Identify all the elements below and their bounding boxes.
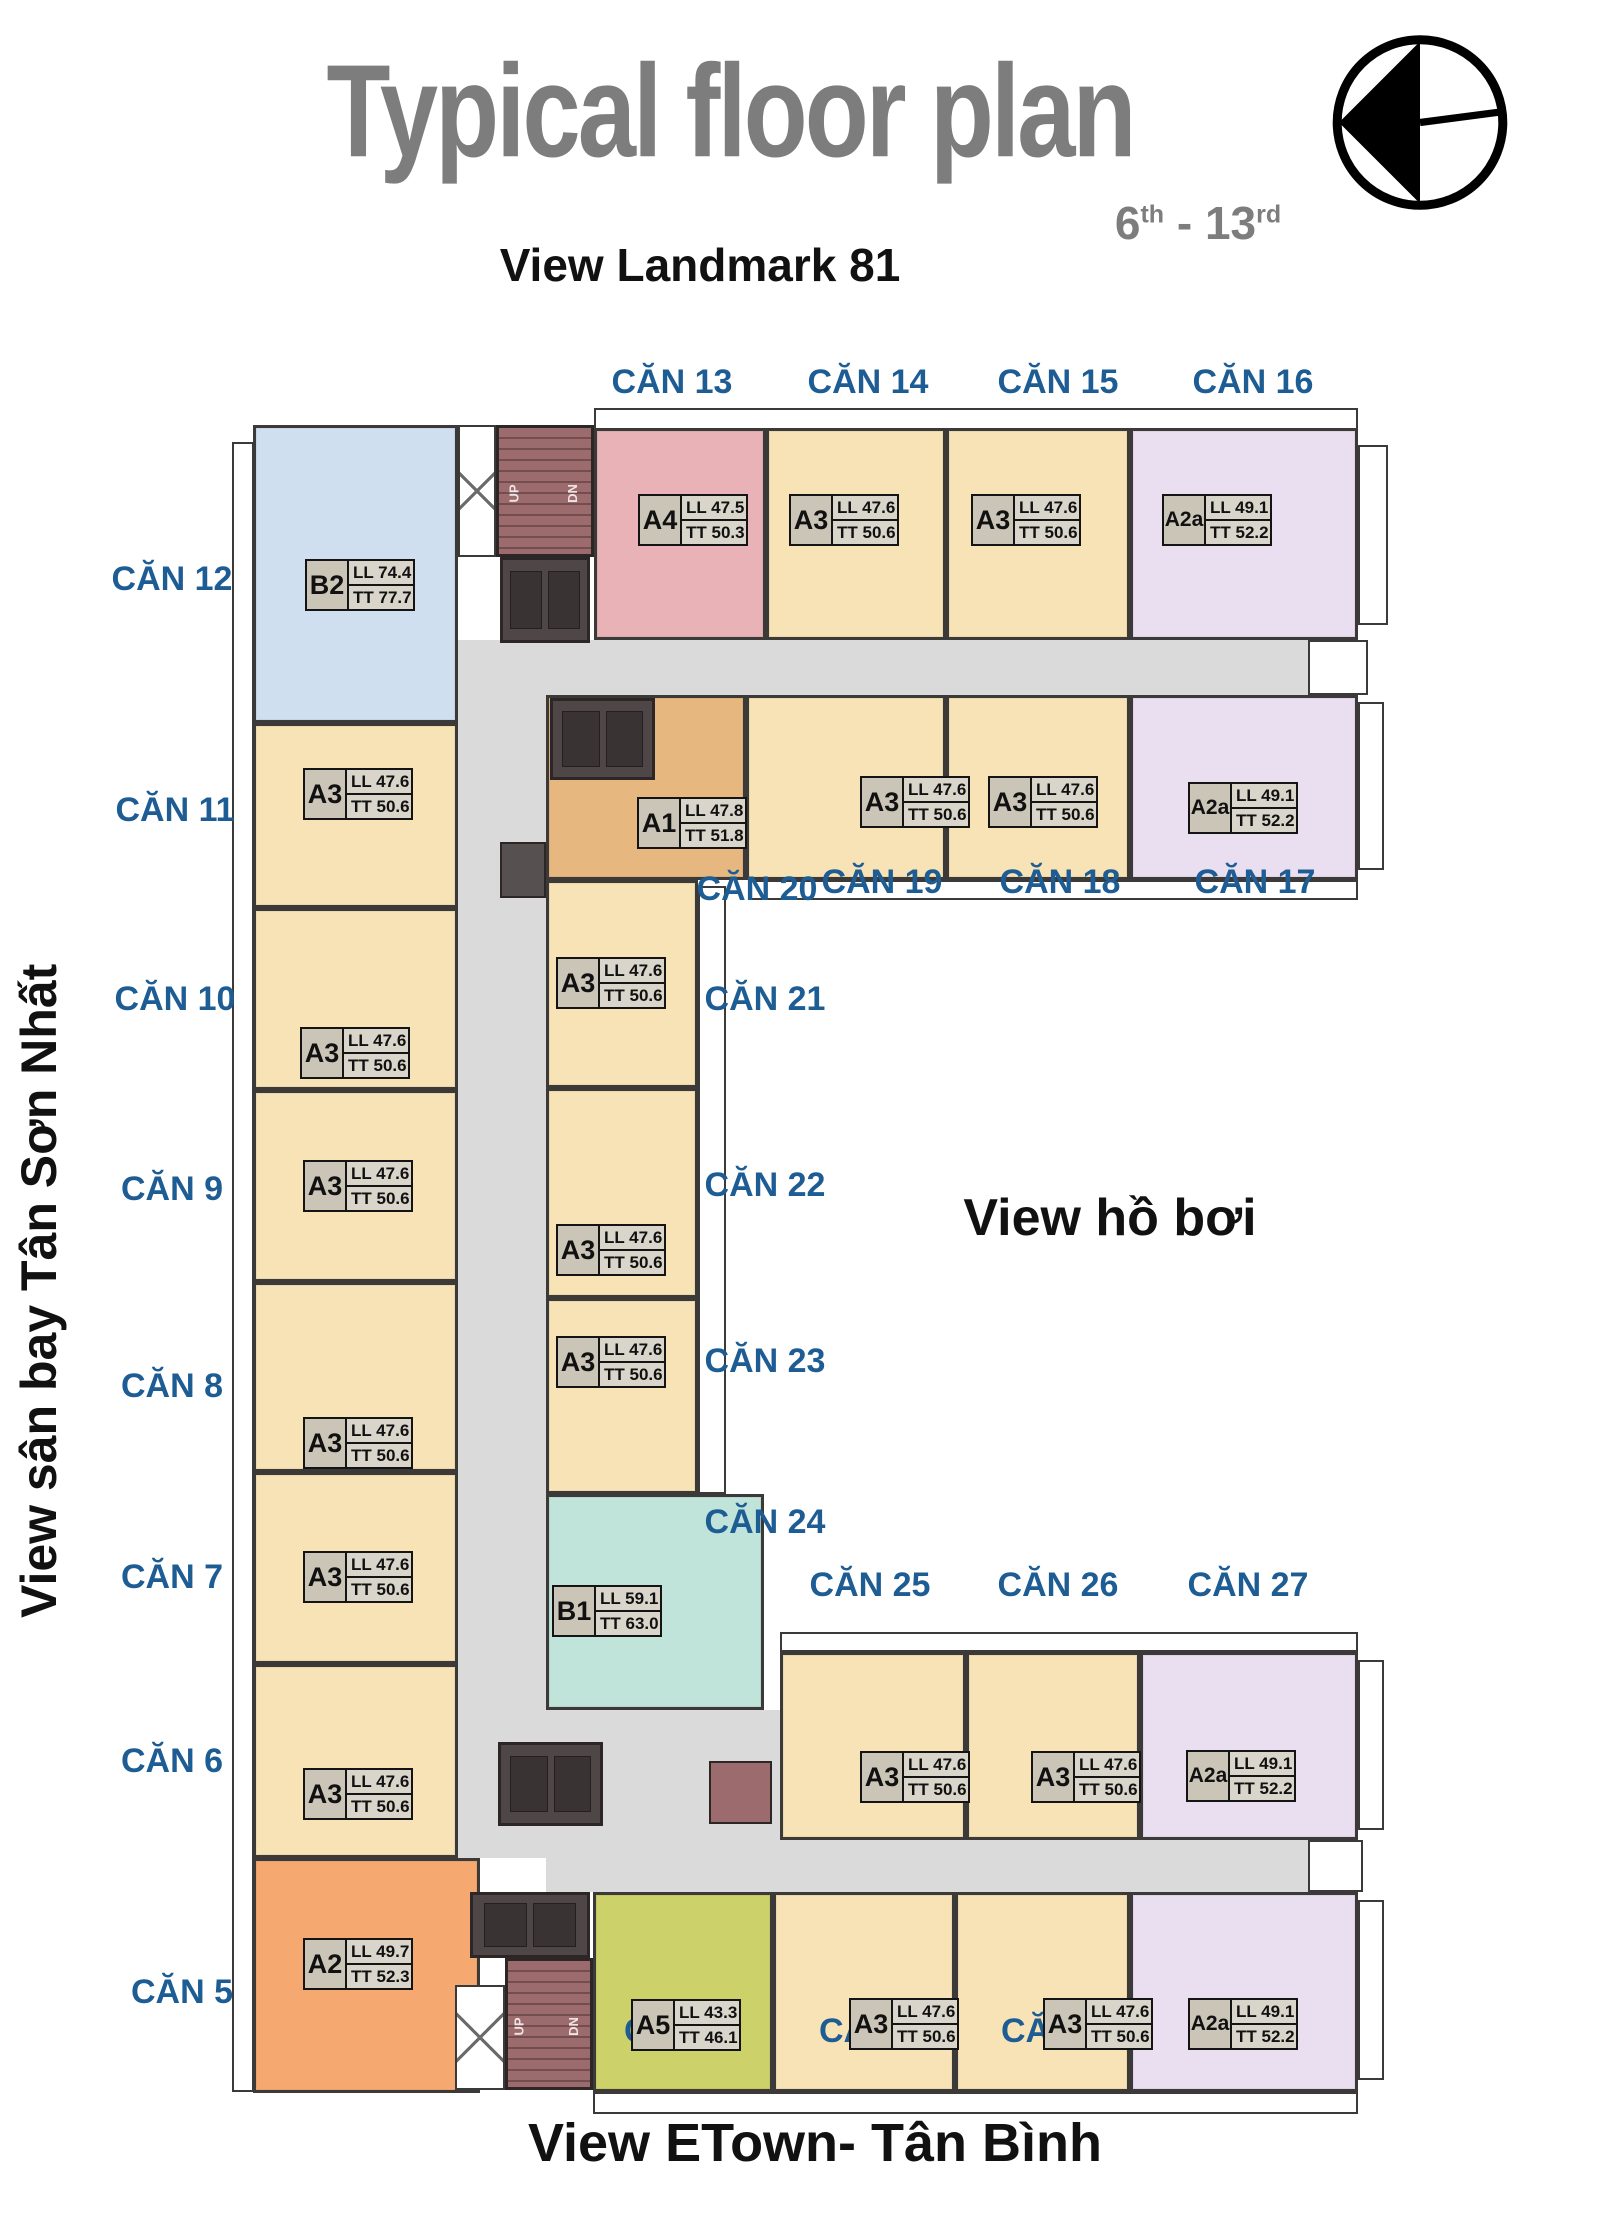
- floor-range: 6th - 13rd: [1048, 196, 1348, 250]
- unit-ll: LL 47.8: [681, 799, 745, 824]
- unit-can23-A3: [546, 1298, 698, 1494]
- unit-type: A3: [558, 1226, 600, 1274]
- infobox-can3: A3LL 47.6TT 50.6: [849, 1998, 959, 2050]
- infobox-can7: A3LL 47.6TT 50.6: [303, 1551, 413, 1603]
- unit-ll: LL 47.6: [600, 1226, 664, 1251]
- unit-ll: LL 47.6: [893, 2000, 957, 2025]
- stairs-bottom: UP DN: [505, 1958, 593, 2090]
- infobox-can21: A3LL 47.6TT 50.6: [556, 957, 666, 1009]
- label-can13: CĂN 13: [597, 363, 747, 402]
- unit-ll: LL 47.6: [347, 1770, 411, 1795]
- elevator-lower: [498, 1742, 603, 1826]
- unit-tt: TT 50.6: [347, 1444, 411, 1467]
- label-can24: CĂN 24: [690, 1503, 840, 1542]
- unit-type: A3: [851, 2000, 893, 2048]
- balcony-left-strip: [232, 442, 254, 2092]
- label-can21: CĂN 21: [690, 980, 840, 1019]
- view-airport-label: View sân bay Tân Sơn Nhất: [10, 788, 68, 1618]
- stairs-top: UP DN: [496, 425, 594, 557]
- balcony-right-1: [1358, 445, 1388, 625]
- infobox-can18: A3LL 47.6TT 50.6: [988, 776, 1098, 828]
- infobox-can8: A3LL 47.6TT 50.6: [303, 1417, 413, 1469]
- infobox-can20: A1LL 47.8TT 51.8: [637, 797, 747, 849]
- unit-tt: TT 50.6: [904, 803, 968, 826]
- unit-type: A3: [305, 1419, 347, 1467]
- unit-ll: LL 47.5: [682, 496, 746, 521]
- unit-ll: LL 47.6: [344, 1029, 408, 1054]
- unit-tt: TT 50.6: [347, 795, 411, 818]
- unit-type: A4: [640, 496, 682, 544]
- unit-tt: TT 50.6: [833, 521, 897, 544]
- unit-tt: TT 50.6: [904, 1778, 968, 1801]
- unit-type: A3: [305, 770, 347, 818]
- unit-tt: TT 50.3: [682, 521, 746, 544]
- label-can9: CĂN 9: [97, 1170, 247, 1209]
- infobox-can4: A5LL 43.3TT 46.1: [631, 1999, 741, 2051]
- infobox-can25: A3LL 47.6TT 50.6: [860, 1751, 970, 1803]
- unit-tt: TT 50.6: [600, 1251, 664, 1274]
- unit-can26-A3: [966, 1652, 1140, 1840]
- label-can18: CĂN 18: [985, 863, 1135, 902]
- balcony-top-strip: [594, 408, 1358, 430]
- label-can7: CĂN 7: [97, 1558, 247, 1597]
- unit-type: A3: [302, 1029, 344, 1077]
- unit-type: A2a: [1190, 784, 1232, 832]
- label-can12: CĂN 12: [97, 560, 247, 599]
- label-can19: CĂN 19: [807, 863, 957, 902]
- unit-ll: LL 49.1: [1230, 1752, 1294, 1777]
- unit-can1-A2a: [1130, 1892, 1358, 2092]
- unit-can6-A3: [253, 1664, 458, 1858]
- unit-type: A2a: [1190, 2000, 1232, 2048]
- view-pool-label: View hồ bơi: [930, 1188, 1290, 1248]
- unit-ll: LL 47.6: [833, 496, 897, 521]
- infobox-can27: A2aLL 49.1TT 52.2: [1186, 1750, 1296, 1802]
- unit-type: A3: [973, 496, 1015, 544]
- balcony-right-2: [1358, 702, 1384, 870]
- label-can14: CĂN 14: [793, 363, 943, 402]
- label-can10: CĂN 10: [100, 980, 250, 1019]
- infobox-can19: A3LL 47.6TT 50.6: [860, 776, 970, 828]
- elevator-mid: [550, 698, 655, 780]
- stairs-dn-label: DN: [565, 484, 580, 503]
- infobox-can2: A3LL 47.6TT 50.6: [1043, 1998, 1153, 2050]
- label-can15: CĂN 15: [983, 363, 1133, 402]
- corridor-bottom: [546, 1840, 1308, 1892]
- unit-tt: TT 63.0: [596, 1612, 660, 1635]
- unit-can3-A3: [773, 1892, 955, 2092]
- label-can11: CĂN 11: [100, 791, 250, 830]
- unit-tt: TT 50.6: [600, 984, 664, 1007]
- view-etown-label: View ETown- Tân Bình: [465, 2112, 1165, 2174]
- unit-tt: TT 46.1: [675, 2026, 739, 2049]
- unit-tt: TT 50.6: [893, 2025, 957, 2048]
- label-can16: CĂN 16: [1178, 363, 1328, 402]
- stairs-up-label: UP: [507, 484, 522, 502]
- unit-tt: TT 50.6: [344, 1054, 408, 1077]
- infobox-can11: A3LL 47.6TT 50.6: [303, 768, 413, 820]
- unit-tt: TT 52.2: [1206, 521, 1270, 544]
- infobox-can1: A2aLL 49.1TT 52.2: [1188, 1998, 1298, 2050]
- infobox-can17: A2aLL 49.1TT 52.2: [1188, 782, 1298, 834]
- infobox-can10: A3LL 47.6TT 50.6: [300, 1027, 410, 1079]
- infobox-can14: A3LL 47.6TT 50.6: [789, 494, 899, 546]
- elevator-bottom: [470, 1892, 590, 1958]
- infobox-can23: A3LL 47.6TT 50.6: [556, 1336, 666, 1388]
- unit-type: A2a: [1188, 1752, 1230, 1800]
- unit-ll: LL 47.6: [1015, 496, 1079, 521]
- unit-tt: TT 50.6: [600, 1363, 664, 1386]
- unit-ll: LL 43.3: [675, 2001, 739, 2026]
- unit-type: A3: [862, 778, 904, 826]
- unit-ll: LL 74.4: [349, 561, 413, 586]
- unit-tt: TT 51.8: [681, 824, 745, 847]
- label-can17: CĂN 17: [1180, 863, 1330, 902]
- unit-ll: LL 47.6: [904, 778, 968, 803]
- infobox-can16: A2aLL 49.1TT 52.2: [1162, 494, 1272, 546]
- unit-ll: LL 47.6: [600, 1338, 664, 1363]
- unit-tt: TT 50.6: [347, 1578, 411, 1601]
- corridor-bottom-end: [1308, 1840, 1363, 1892]
- label-can5: CĂN 5: [107, 1973, 257, 2012]
- view-landmark-label: View Landmark 81: [350, 238, 1050, 292]
- unit-ll: LL 47.6: [904, 1753, 968, 1778]
- balcony-right-4: [1358, 1900, 1384, 2080]
- floor-plan-page: Typical floor plan 6th - 13rd View Landm…: [0, 0, 1600, 2230]
- unit-type: A3: [791, 496, 833, 544]
- elevator-top: [500, 557, 590, 643]
- stairs-up-label: UP: [512, 2017, 527, 2035]
- unit-ll: LL 47.6: [347, 770, 411, 795]
- unit-ll: LL 47.6: [1087, 2000, 1151, 2025]
- unit-type: B2: [307, 561, 349, 609]
- unit-type: B1: [554, 1587, 596, 1635]
- compass-icon: [1330, 30, 1510, 215]
- unit-type: A3: [305, 1553, 347, 1601]
- void-bottom: [455, 1985, 505, 2090]
- unit-tt: TT 50.6: [1032, 803, 1096, 826]
- balcony-bottom-strip: [593, 2092, 1358, 2114]
- infobox-can12: B2LL 74.4TT 77.7: [305, 559, 415, 611]
- unit-type: A3: [558, 959, 600, 1007]
- label-can25: CĂN 25: [795, 1566, 945, 1605]
- unit-ll: LL 47.6: [1032, 778, 1096, 803]
- unit-ll: LL 47.6: [1075, 1753, 1139, 1778]
- unit-type: A3: [1033, 1753, 1075, 1801]
- unit-type: A3: [305, 1770, 347, 1818]
- unit-type: A3: [558, 1338, 600, 1386]
- balcony-right-3: [1358, 1660, 1384, 1830]
- service-shaft-lower: [709, 1761, 772, 1824]
- unit-ll: LL 47.6: [347, 1553, 411, 1578]
- page-title: Typical floor plan: [130, 48, 1330, 173]
- infobox-can9: A3LL 47.6TT 50.6: [303, 1160, 413, 1212]
- infobox-can22: A3LL 47.6TT 50.6: [556, 1224, 666, 1276]
- unit-tt: TT 50.6: [1015, 521, 1079, 544]
- unit-type: A3: [305, 1162, 347, 1210]
- unit-tt: TT 77.7: [349, 586, 413, 609]
- unit-tt: TT 52.2: [1232, 809, 1296, 832]
- unit-type: A3: [990, 778, 1032, 826]
- unit-tt: TT 50.6: [1075, 1778, 1139, 1801]
- infobox-can5: A2LL 49.7TT 52.3: [303, 1938, 413, 1990]
- infobox-can6: A3LL 47.6TT 50.6: [303, 1768, 413, 1820]
- corridor-top: [458, 640, 1308, 695]
- unit-type: A5: [633, 2001, 675, 2049]
- label-can23: CĂN 23: [690, 1342, 840, 1381]
- label-can6: CĂN 6: [97, 1742, 247, 1781]
- unit-can2-A3: [955, 1892, 1130, 2092]
- unit-can27-A2a: [1140, 1652, 1358, 1840]
- stairs-dn-label: DN: [566, 2017, 581, 2036]
- unit-ll: LL 59.1: [596, 1587, 660, 1612]
- unit-ll: LL 47.6: [347, 1419, 411, 1444]
- unit-ll: LL 49.1: [1232, 784, 1296, 809]
- unit-ll: LL 47.6: [600, 959, 664, 984]
- void-top: [458, 425, 496, 557]
- unit-ll: LL 49.1: [1206, 496, 1270, 521]
- unit-can4-A5: [593, 1892, 773, 2092]
- infobox-can15: A3LL 47.6TT 50.6: [971, 494, 1081, 546]
- unit-ll: LL 49.1: [1232, 2000, 1296, 2025]
- unit-type: A2: [305, 1940, 347, 1988]
- unit-type: A1: [639, 799, 681, 847]
- unit-tt: TT 52.3: [347, 1965, 411, 1988]
- label-can26: CĂN 26: [983, 1566, 1133, 1605]
- unit-tt: TT 52.2: [1230, 1777, 1294, 1800]
- unit-ll: LL 49.7: [347, 1940, 411, 1965]
- service-shaft-mid: [500, 842, 546, 898]
- unit-ll: LL 47.6: [347, 1162, 411, 1187]
- unit-tt: TT 50.6: [347, 1187, 411, 1210]
- unit-type: A3: [862, 1753, 904, 1801]
- infobox-can26: A3LL 47.6TT 50.6: [1031, 1751, 1141, 1803]
- infobox-can24: B1LL 59.1TT 63.0: [552, 1585, 662, 1637]
- unit-tt: TT 50.6: [1087, 2025, 1151, 2048]
- infobox-can13: A4LL 47.5TT 50.3: [638, 494, 748, 546]
- unit-tt: TT 52.2: [1232, 2025, 1296, 2048]
- corridor-top-end: [1308, 640, 1368, 695]
- balcony-court-bottom-strip: [780, 1632, 1358, 1652]
- unit-type: A3: [1045, 2000, 1087, 2048]
- label-can27: CĂN 27: [1173, 1566, 1323, 1605]
- label-can22: CĂN 22: [690, 1166, 840, 1205]
- unit-type: A2a: [1164, 496, 1206, 544]
- unit-can25-A3: [780, 1652, 966, 1840]
- label-can8: CĂN 8: [97, 1367, 247, 1406]
- unit-tt: TT 50.6: [347, 1795, 411, 1818]
